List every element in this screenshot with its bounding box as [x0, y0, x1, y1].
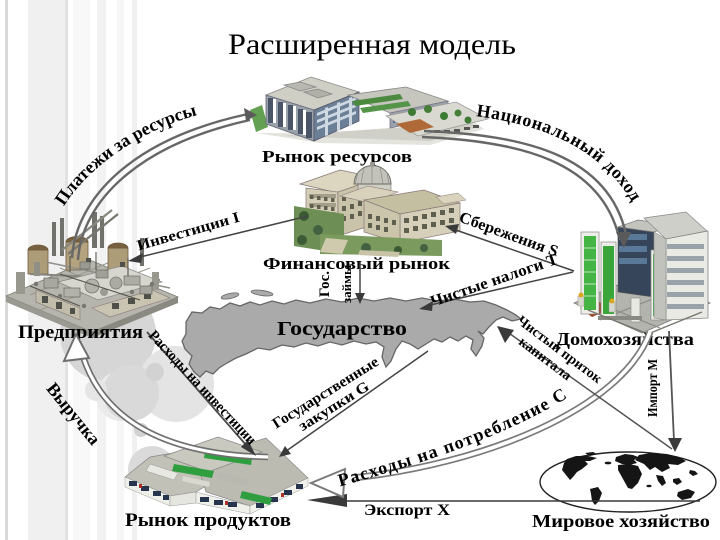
svg-text:Домохозяйства: Домохозяйства	[556, 329, 694, 349]
svg-text:займы: займы	[339, 265, 354, 303]
svg-text:Финансовый рынок: Финансовый рынок	[263, 254, 450, 273]
svg-text:Импорт М: Импорт М	[646, 359, 661, 417]
svg-text:Предприятия: Предприятия	[18, 322, 143, 343]
svg-text:Рынок продуктов: Рынок продуктов	[125, 510, 291, 531]
svg-text:Рынок ресурсов: Рынок ресурсов	[262, 147, 412, 166]
svg-text:Гос.: Гос.	[317, 271, 333, 297]
svg-text:Государство: Государство	[277, 318, 407, 340]
svg-text:Мировое хозяйство: Мировое хозяйство	[532, 511, 710, 531]
svg-text:Экспорт X: Экспорт X	[364, 502, 451, 519]
svg-text:Расширенная модель: Расширенная модель	[228, 29, 516, 61]
